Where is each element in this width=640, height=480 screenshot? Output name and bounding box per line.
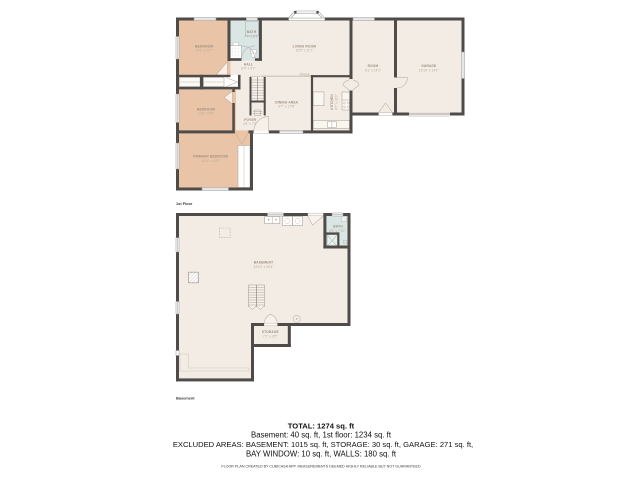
svg-text:13'10" x 14'1": 13'10" x 14'1" (419, 68, 439, 72)
svg-text:11'8" x 9'6": 11'8" x 9'6" (198, 112, 214, 116)
svg-text:TOTAL: 1274 sq. ft: TOTAL: 1274 sq. ft (288, 421, 355, 430)
svg-text:13'4" x 11'8": 13'4" x 11'8" (202, 159, 220, 163)
svg-text:5'5" x 7'10": 5'5" x 7'10" (329, 229, 345, 233)
svg-text:FLOOR PLAN CREATED BY CUBICASA: FLOOR PLAN CREATED BY CUBICASA APP. MEAS… (221, 464, 421, 468)
svg-text:Basement: Basement (176, 395, 195, 400)
svg-text:Basement: 40 sq. ft, 1st floor: Basement: 40 sq. ft, 1st floor: 1234 sq.… (251, 431, 392, 440)
svg-text:6'4" x 9'7": 6'4" x 9'7" (241, 67, 256, 71)
svg-text:BASEMENT: BASEMENT (254, 260, 273, 264)
svg-text:9'7" x 17'8": 9'7" x 17'8" (279, 105, 295, 109)
svg-text:8'7" x 11'1": 8'7" x 11'1" (334, 94, 338, 110)
svg-text:1st Floor: 1st Floor (176, 201, 193, 206)
svg-text:4'9" x 7'4": 4'9" x 7'4" (243, 122, 258, 126)
svg-text:EXCLUDED AREAS: BASEMENT: 1015: EXCLUDED AREAS: BASEMENT: 1015 sq. ft, S… (173, 440, 473, 449)
svg-text:STORAGE: STORAGE (262, 330, 280, 334)
svg-text:34'10" x 33'4": 34'10" x 33'4" (254, 265, 274, 269)
svg-text:BAY WINDOW: 10 sq. ft, WALLS:: BAY WINDOW: 10 sq. ft, WALLS: 180 sq. ft (246, 450, 397, 459)
svg-text:FRIDGE: FRIDGE (299, 72, 309, 76)
svg-text:9'1" x 14'1": 9'1" x 14'1" (365, 68, 381, 72)
svg-text:BATH: BATH (333, 225, 343, 229)
svg-text:10'6" x 11'7": 10'6" x 11'7" (195, 49, 213, 53)
svg-text:15'5" x 11'7": 15'5" x 11'7" (295, 48, 313, 52)
svg-text:4'4" x 8'1": 4'4" x 8'1" (244, 34, 259, 38)
svg-text:7'1" x 3'5": 7'1" x 3'5" (263, 335, 278, 339)
